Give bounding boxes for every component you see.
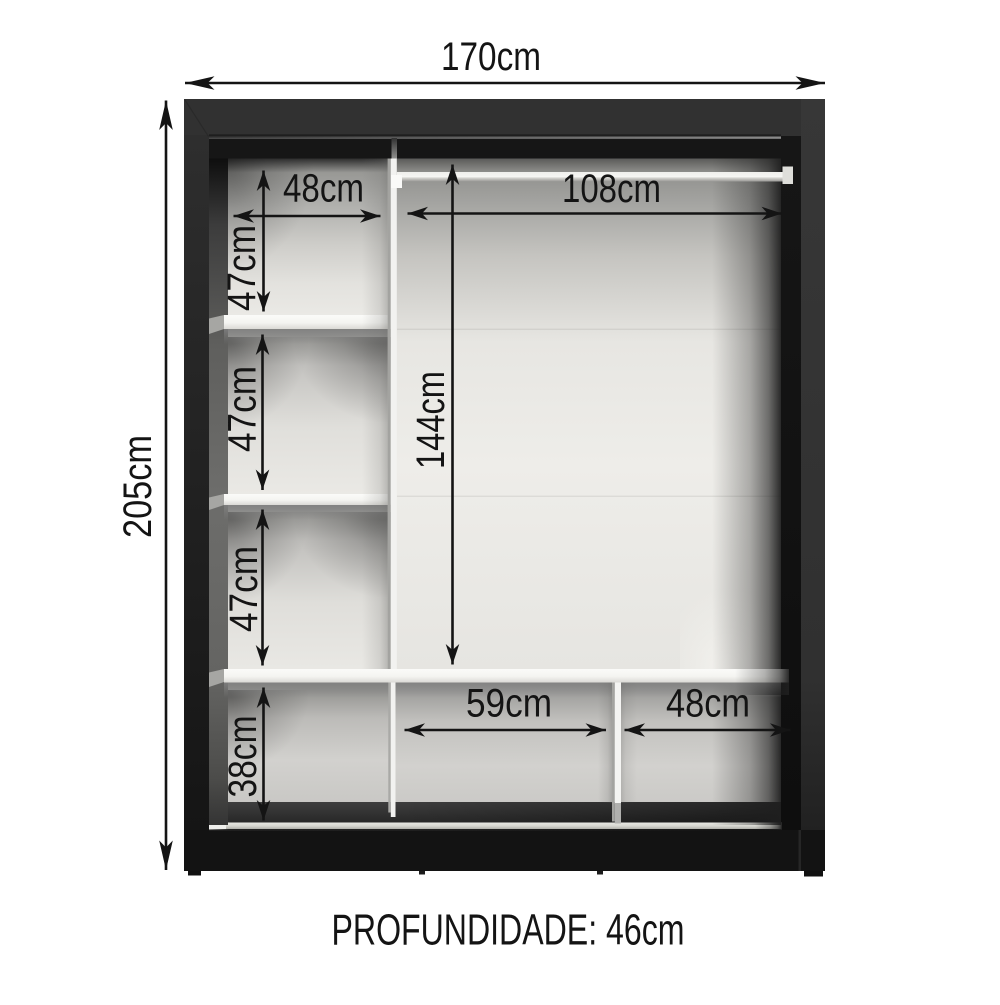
svg-text:205cm: 205cm [116,435,160,538]
svg-text:PROFUNDIDADE: 46cm: PROFUNDIDADE: 46cm [332,907,685,955]
svg-text:47cm: 47cm [222,546,266,632]
svg-text:108cm: 108cm [562,167,661,211]
svg-text:48cm: 48cm [666,682,750,726]
svg-text:144cm: 144cm [409,371,453,469]
svg-text:38cm: 38cm [221,716,265,798]
svg-text:47cm: 47cm [220,225,264,311]
svg-text:170cm: 170cm [441,35,541,79]
svg-text:48cm: 48cm [283,167,364,211]
svg-text:59cm: 59cm [466,682,552,726]
svg-text:47cm: 47cm [221,366,265,452]
